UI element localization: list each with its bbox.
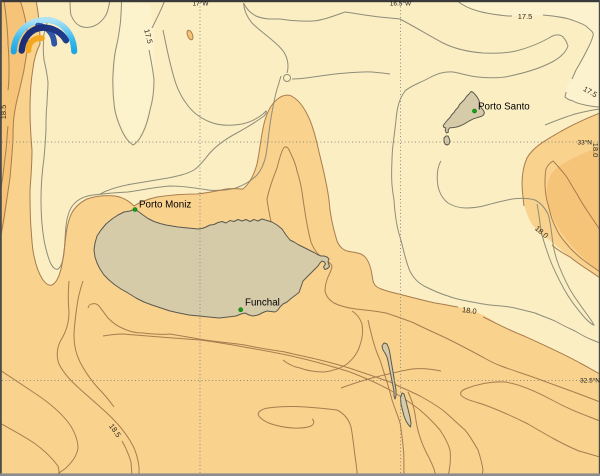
svg-text:33°N: 33°N [577,139,592,147]
svg-text:17.5: 17.5 [518,12,533,21]
svg-text:16.5°W: 16.5°W [390,0,412,8]
svg-text:Porto Moniz: Porto Moniz [139,200,191,211]
svg-text:Porto Santo: Porto Santo [478,102,530,113]
svg-text:18.0: 18.0 [591,143,600,158]
svg-text:17°W: 17°W [193,0,210,8]
svg-text:32.5°N: 32.5°N [580,377,600,385]
svg-text:Funchal: Funchal [245,298,280,309]
svg-text:18.5: 18.5 [0,105,8,120]
